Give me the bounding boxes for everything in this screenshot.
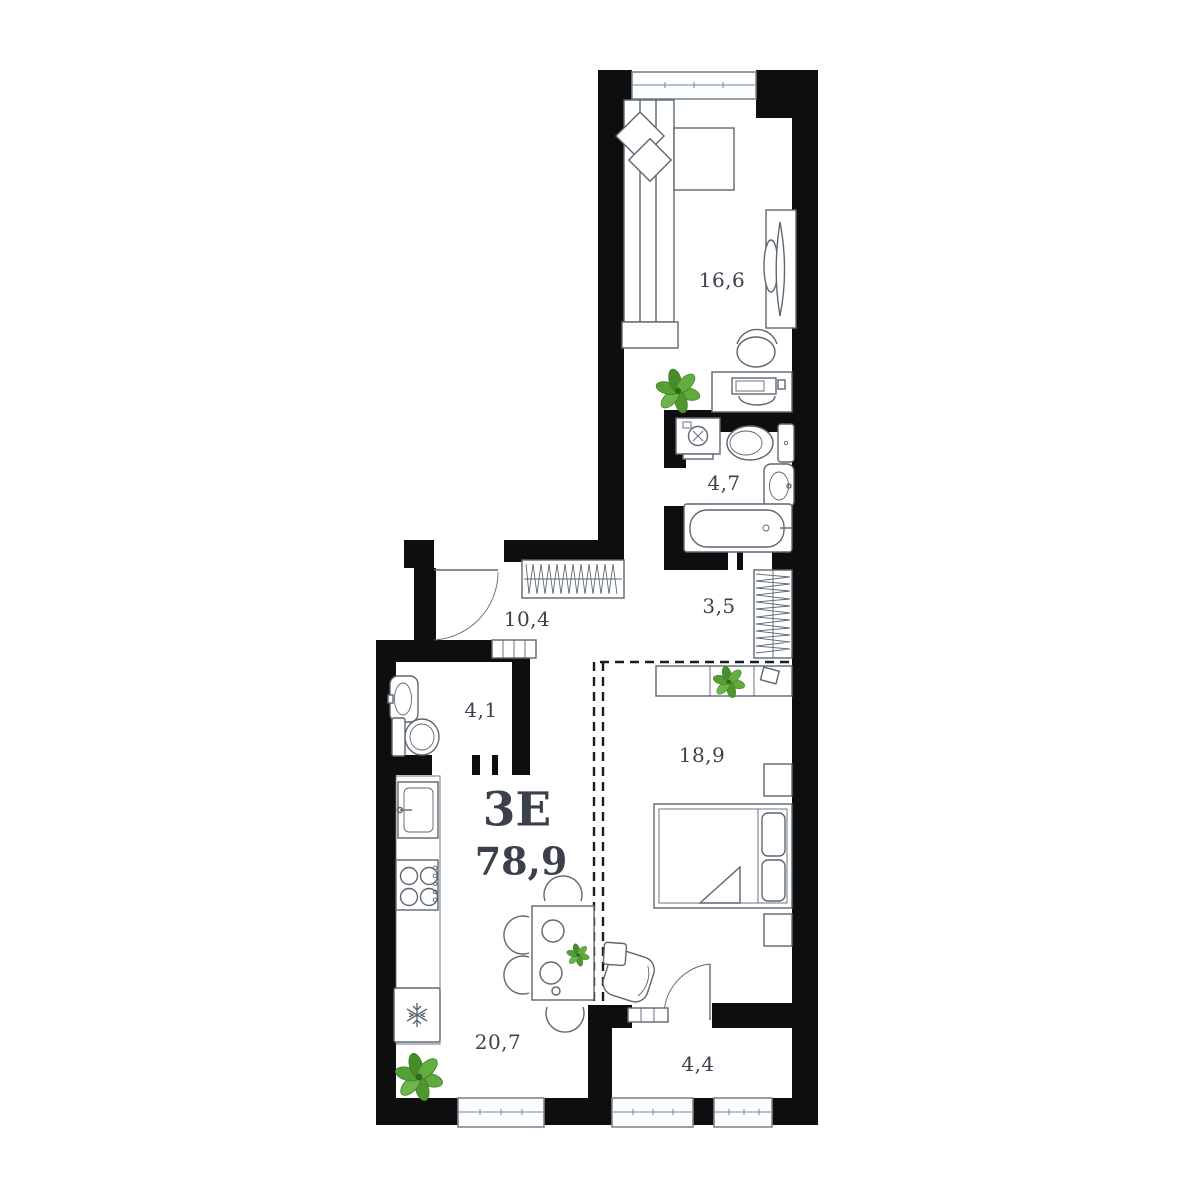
floor-plan: 16,6 4,7 3,5 10,4 4,1 18,9 20,7 4,4 3Е 7… — [0, 0, 1200, 1200]
bathroom-sink — [764, 464, 794, 508]
balcony-threshold — [628, 1008, 668, 1022]
stove — [396, 860, 438, 910]
wall-segment — [772, 1098, 818, 1125]
window — [632, 72, 756, 99]
window — [612, 1098, 693, 1127]
nightstand — [764, 764, 792, 796]
balcony-door — [664, 964, 710, 1020]
wall-segment — [737, 550, 743, 570]
room-area-label-wc: 4,1 — [464, 698, 497, 722]
room-area-label-hallway: 10,4 — [504, 607, 551, 631]
room-area-label-balcony: 4,4 — [681, 1052, 714, 1076]
unit-type-label: 3Е — [483, 783, 552, 838]
wall-segment — [712, 1003, 792, 1028]
wc-toilet — [392, 718, 439, 756]
total-area-label: 78,9 — [475, 839, 568, 884]
desk-with-computer — [712, 372, 792, 412]
wall-segment — [512, 640, 530, 775]
wall-segment — [588, 1005, 632, 1028]
nightstand — [764, 914, 792, 946]
wall-segment — [376, 755, 432, 775]
double-bed — [654, 804, 792, 908]
armchair — [590, 937, 660, 1005]
wall-segment — [772, 550, 792, 570]
room-area-label-wardrobe: 3,5 — [702, 594, 735, 618]
room-area-label-bathroom: 4,7 — [707, 471, 740, 495]
wall-segment — [376, 1098, 458, 1125]
room-area-label-living: 16,6 — [699, 268, 746, 292]
hall-wardrobe — [522, 560, 624, 598]
wall-segment — [404, 540, 434, 568]
wall-segment — [664, 550, 728, 570]
dining-table — [532, 906, 594, 1000]
shoe-bench — [492, 640, 536, 658]
corner-sofa — [616, 100, 734, 348]
window — [714, 1098, 772, 1127]
toilet — [727, 424, 794, 462]
window — [458, 1098, 544, 1127]
wall-segment — [504, 540, 624, 562]
wall-segment — [472, 755, 480, 775]
room-area-label-bedroom: 18,9 — [679, 743, 726, 767]
room-area-label-kitchen: 20,7 — [475, 1030, 522, 1054]
wall-segment — [598, 70, 624, 562]
desk-chair — [737, 329, 777, 367]
wall-segment — [492, 755, 498, 775]
clothes-rack — [754, 570, 792, 658]
plant-icon — [655, 368, 702, 415]
wardrobe-mirror — [764, 210, 796, 328]
wc-sink — [388, 676, 418, 722]
kitchen-sink — [398, 782, 439, 838]
wall-segment — [414, 568, 436, 644]
fridge — [394, 988, 440, 1042]
plant-icon — [394, 1052, 444, 1102]
dining-chair — [546, 1007, 584, 1032]
floor-plan-svg — [0, 0, 1200, 1200]
bathtub — [684, 504, 792, 552]
dining-chair — [504, 916, 529, 954]
wall-segment — [693, 1098, 714, 1125]
entrance-door — [434, 570, 498, 640]
dining-chair — [504, 956, 529, 994]
washing-machine — [676, 418, 720, 459]
